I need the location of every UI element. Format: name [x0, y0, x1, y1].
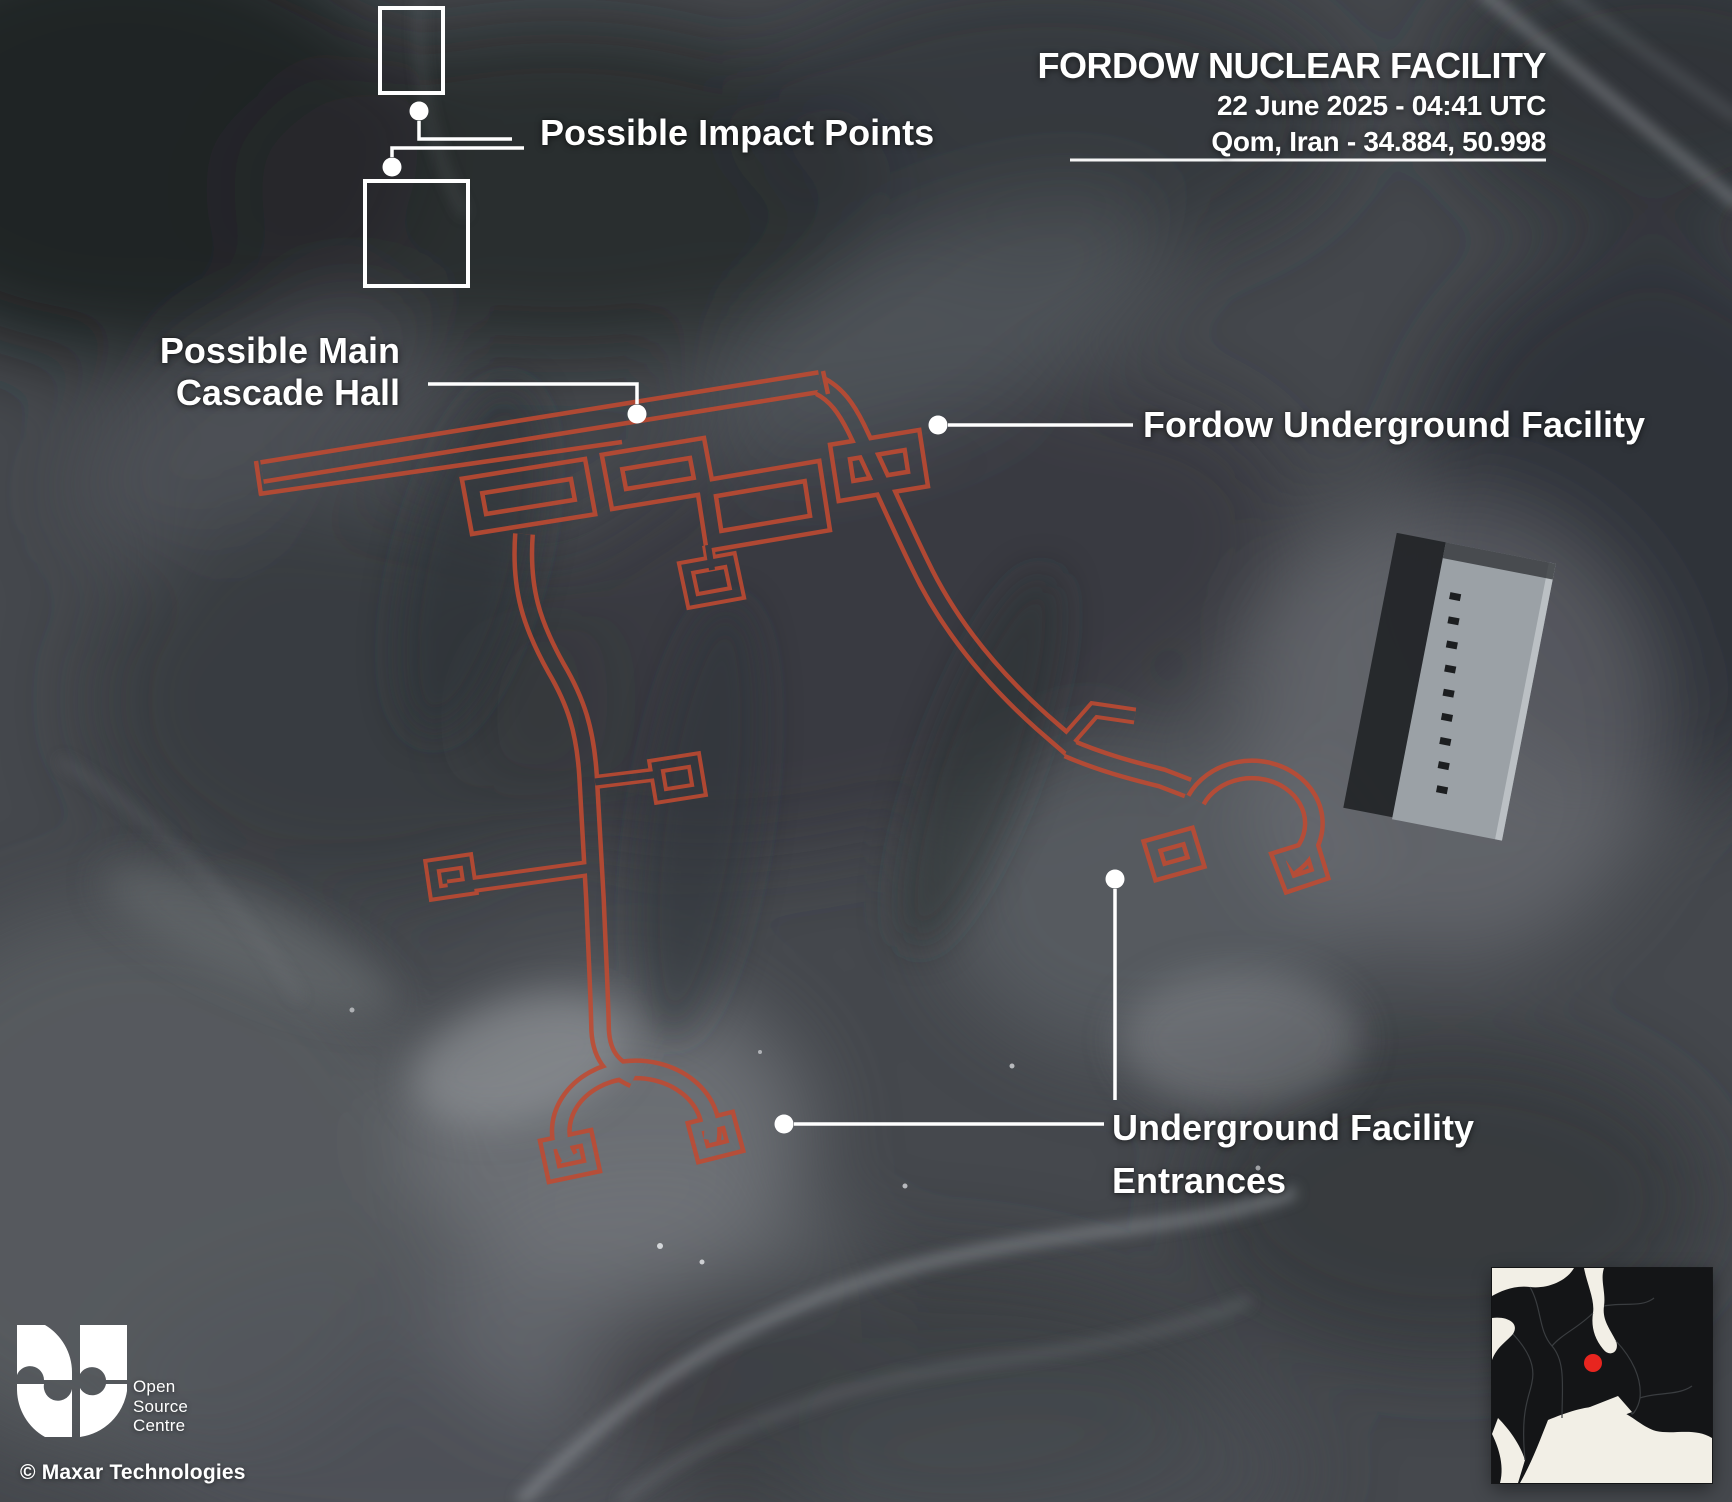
- facility-entrances-label-line2: Entrances: [1112, 1154, 1474, 1207]
- cascade-hall-callout-line: [428, 384, 637, 404]
- cascade-hall-label-line1: Possible Main: [160, 330, 400, 372]
- impact-callout-dot-2: [383, 158, 402, 177]
- capture-location: Qom, Iran - 34.884, 50.998: [1038, 126, 1546, 158]
- impact-callout-dot-1: [410, 102, 429, 121]
- entrances-callout-dot-1: [775, 1115, 794, 1134]
- open-source-centre-logo-icon: [17, 1325, 127, 1437]
- capture-datetime: 22 June 2025 - 04:41 UTC: [1038, 90, 1546, 122]
- cascade-hall-label: Possible Main Cascade Hall: [160, 330, 400, 414]
- header: FORDOW NUCLEAR FACILITY 22 June 2025 - 0…: [1038, 46, 1546, 158]
- impact-callout-line-2: [392, 148, 524, 157]
- facility-location-dot: [1584, 1354, 1602, 1372]
- impact-points-label: Possible Impact Points: [540, 112, 934, 154]
- locator-inset-map: [1492, 1268, 1712, 1483]
- page-title: FORDOW NUCLEAR FACILITY: [1038, 46, 1546, 86]
- cascade-hall-callout-dot: [628, 405, 647, 424]
- impact-point-box-1: [380, 8, 443, 93]
- facility-entrances-label-line1: Underground Facility: [1112, 1101, 1474, 1154]
- impact-point-box-2: [365, 181, 468, 286]
- annotated-satellite-image: FORDOW NUCLEAR FACILITY 22 June 2025 - 0…: [0, 0, 1732, 1502]
- fordow-callout-dot: [929, 416, 948, 435]
- underground-facility-label: Fordow Underground Facility: [1143, 404, 1645, 446]
- entrances-callout-dot-2: [1106, 870, 1125, 889]
- annotation-layer: [0, 0, 1732, 1502]
- facility-entrances-label: Underground Facility Entrances: [1112, 1101, 1474, 1207]
- impact-callout-line-1: [419, 121, 512, 139]
- cascade-hall-label-line2: Cascade Hall: [160, 372, 400, 414]
- open-source-centre-wordmark: Open Source Centre: [133, 1377, 188, 1436]
- maxar-copyright: © Maxar Technologies: [20, 1461, 246, 1485]
